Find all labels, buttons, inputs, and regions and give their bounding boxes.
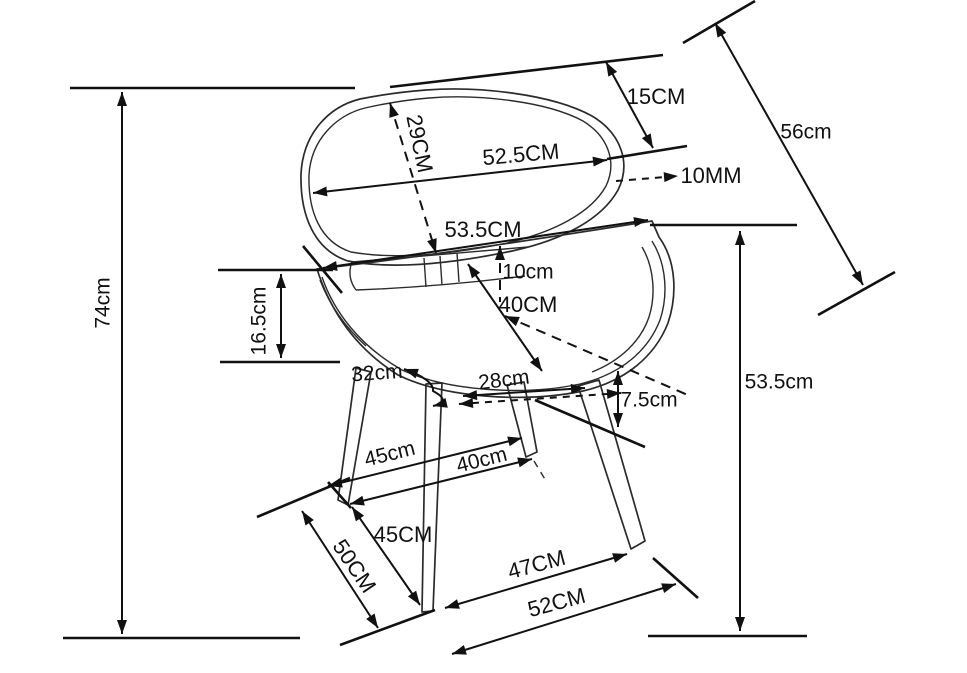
dim-seat-edge-drop: 7.5cm (618, 371, 678, 427)
support-band-divider (424, 258, 426, 287)
dim-label-56cm: 56cm (780, 121, 831, 144)
dim-label-45cm-front: 45CM (374, 522, 433, 547)
dim-overall-height: 74cm (92, 92, 122, 634)
ext-backrest-top (390, 55, 663, 87)
dim-backrest-width: 52.5CM (313, 139, 607, 193)
dim-label-53-5cm-right: 53.5cm (745, 371, 814, 394)
dim-label-29cm: 29CM (401, 112, 438, 175)
dim-label-10mm: 10MM (680, 163, 741, 188)
ext-legB-ground (340, 610, 435, 645)
chair-dimension-diagram: 74cm 16.5cm 29CM 52.5CM 15CM 56cm 10MM 5… (0, 0, 967, 673)
dim-line-52-5cm (313, 160, 607, 193)
dim-leg-length: 50CM (302, 511, 381, 628)
diagram-canvas: 74cm 16.5cm 29CM 52.5CM 15CM 56cm 10MM 5… (0, 0, 967, 673)
dim-line-10mm (616, 176, 678, 181)
dim-leg-top-spacing: 28cm (459, 366, 621, 404)
dim-label-74cm: 74cm (92, 277, 115, 328)
dim-seat-side: 32cm (351, 360, 443, 406)
leg-front-left (338, 368, 371, 505)
dim-label-40cm-seat: 40CM (499, 292, 558, 317)
support-band-divider (440, 256, 442, 285)
dim-label-32cm: 32cm (351, 360, 404, 387)
dim-label-15cm: 15CM (627, 84, 686, 109)
tick-legD-tip (653, 558, 698, 598)
leg-front-mid (422, 383, 442, 612)
dim-pointer-32cm (404, 369, 443, 406)
leg-back-mid-hidden (534, 461, 546, 481)
dim-label-7-5cm: 7.5cm (620, 389, 677, 412)
tick-56-top (683, 1, 755, 43)
dim-shell-thickness: 10MM (616, 163, 742, 188)
dim-label-52cm: 52CM (525, 583, 588, 622)
dim-backrest-diagonal: 29CM (390, 103, 438, 253)
dim-base-width: 52CM (452, 583, 676, 654)
seat-edge-inner (592, 247, 653, 372)
ext-backrest-side (607, 146, 687, 159)
dim-seat-height: 53.5cm (740, 231, 813, 631)
dim-backrest-drop: 16.5cm (248, 274, 281, 358)
support-band-divider (457, 253, 459, 282)
support-band-left-cap (350, 262, 356, 290)
dim-backrest-top-offset: 15CM (606, 62, 685, 148)
dim-seat-width: 53.5CM (323, 217, 648, 268)
dim-line-56cm (715, 23, 863, 285)
dim-backrest-length: 56cm (715, 23, 863, 285)
dim-label-47cm: 47CM (505, 545, 568, 584)
dim-label-16-5cm: 16.5cm (248, 287, 271, 356)
dim-label-53-5cm-seat: 53.5CM (444, 217, 521, 242)
tick-56-bottom (818, 272, 895, 315)
dim-label-10cm: 10cm (502, 261, 553, 284)
dim-label-52-5cm: 52.5CM (481, 139, 560, 171)
